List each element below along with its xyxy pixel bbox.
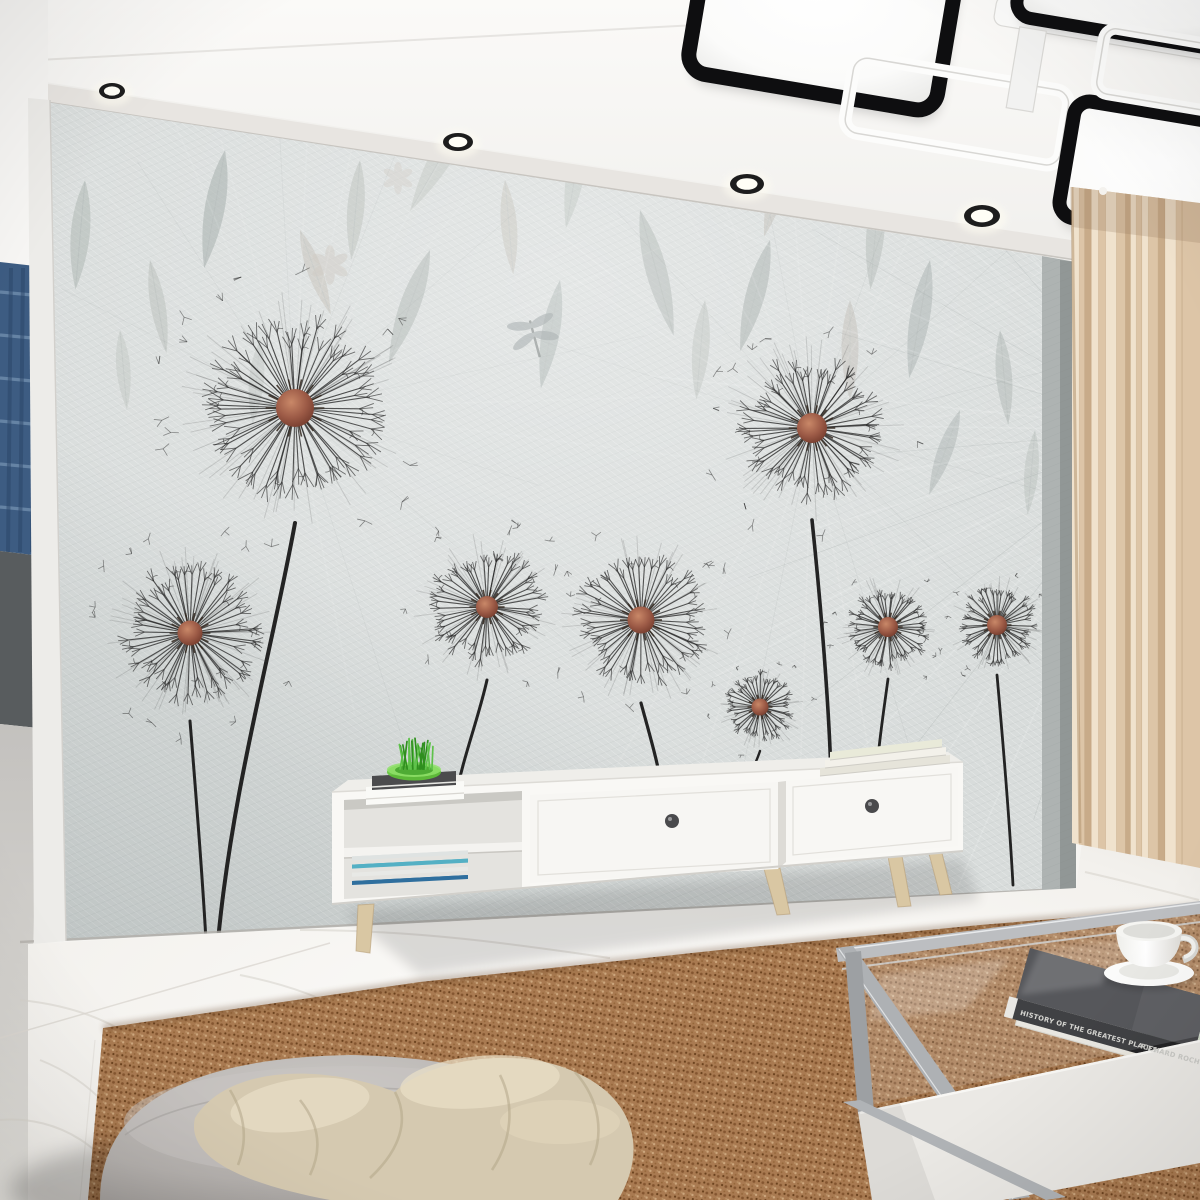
photo-vignette bbox=[0, 0, 1200, 1200]
scene-svg: HISTORY OF THE GREATEST PLACES RICHARD R… bbox=[0, 0, 1200, 1200]
living-room-photo: HISTORY OF THE GREATEST PLACES RICHARD R… bbox=[0, 0, 1200, 1200]
